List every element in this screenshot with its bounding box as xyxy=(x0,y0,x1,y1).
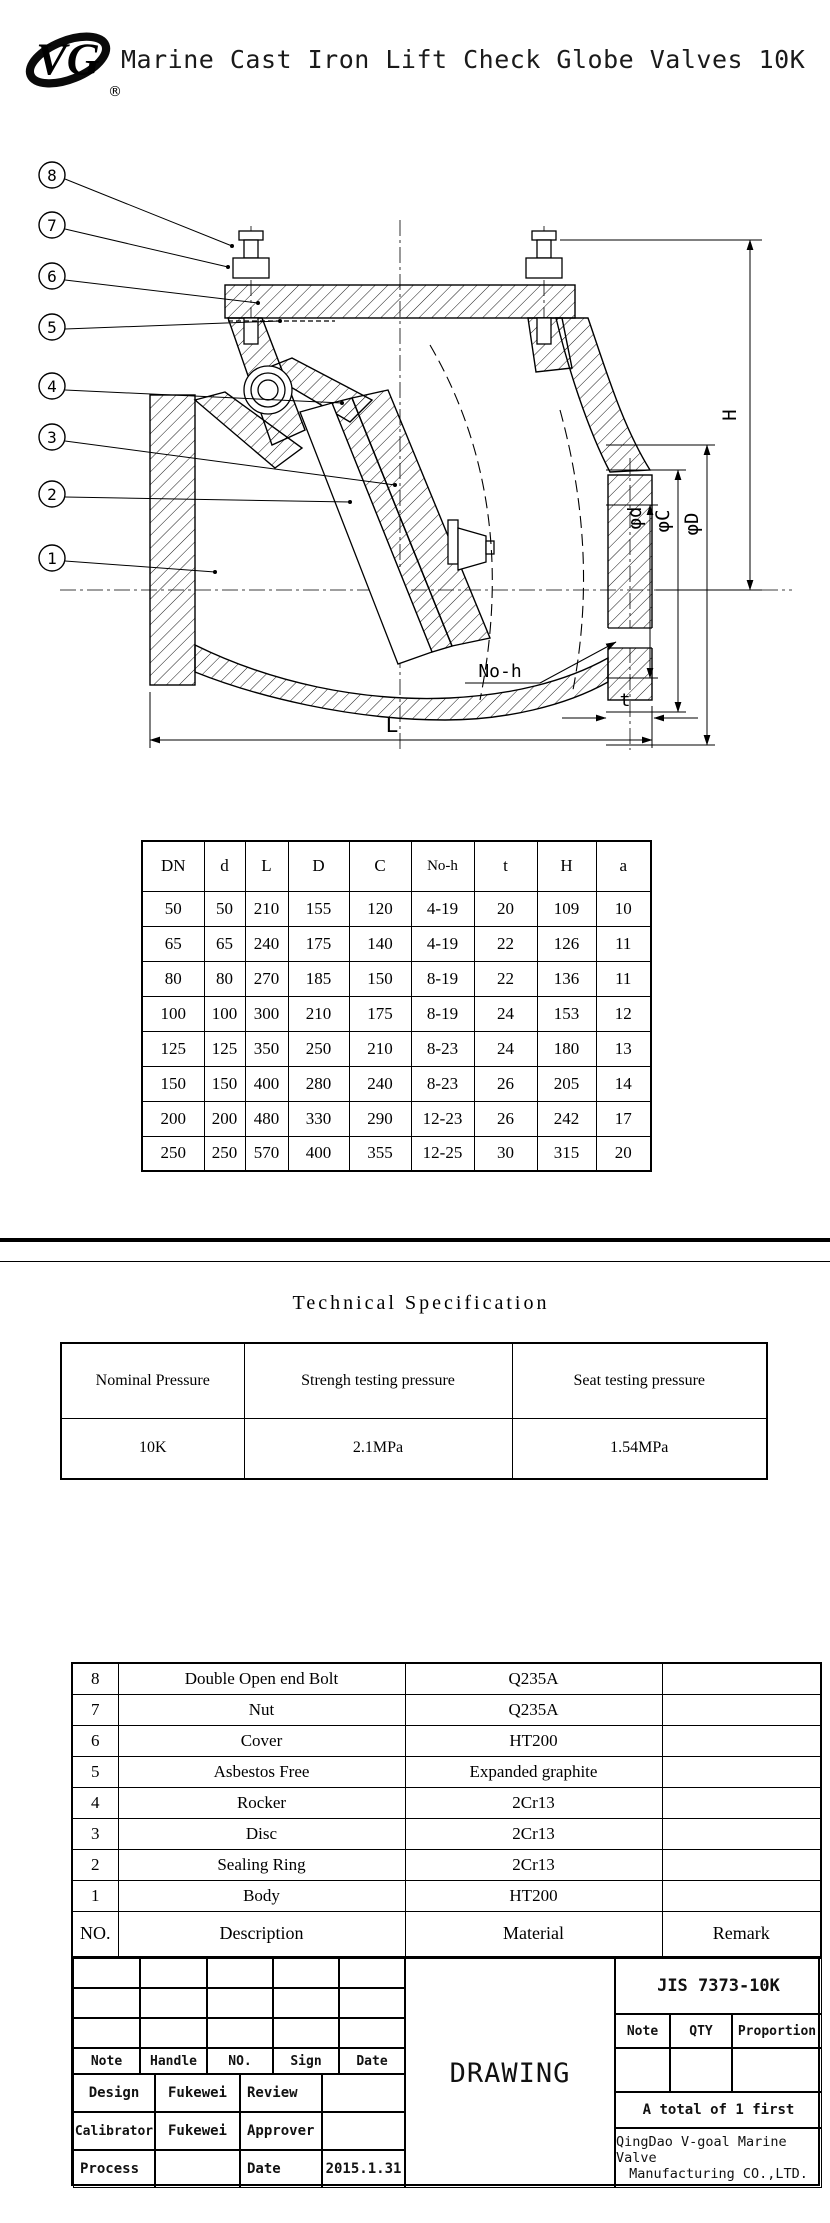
dim-Noh-label: No-h xyxy=(478,661,521,682)
table-row: 1251253502502108-232418013 xyxy=(142,1031,651,1066)
company-cell: QingDao V-goal Marine Valve Manufacturin… xyxy=(615,2128,822,2188)
part-material: HT200 xyxy=(405,1880,662,1911)
company-logo: VG xyxy=(22,16,114,104)
cell: 17 xyxy=(596,1101,651,1136)
calibrator-name: Fukewei xyxy=(155,2112,240,2150)
part-no: 5 xyxy=(72,1756,118,1787)
col-header: D xyxy=(288,841,349,891)
cell: 22 xyxy=(474,926,537,961)
part-material: 2Cr13 xyxy=(405,1849,662,1880)
cell: 570 xyxy=(245,1136,288,1171)
cell: 400 xyxy=(245,1066,288,1101)
cell: 210 xyxy=(349,1031,411,1066)
dimension-table: DN d L D C No-h t H a 50502101551204-192… xyxy=(141,840,652,1172)
cell: 180 xyxy=(537,1031,596,1066)
part-no: 8 xyxy=(72,1663,118,1694)
cell: 125 xyxy=(204,1031,245,1066)
drawing-cell: DRAWING xyxy=(405,1958,615,2188)
cell: 10 xyxy=(596,891,651,926)
callout-2: 2 xyxy=(47,485,57,504)
cell: 8-23 xyxy=(411,1066,474,1101)
qty-note-value xyxy=(615,2048,670,2092)
spec-value: 10K xyxy=(61,1418,244,1479)
qty-header-note: Note xyxy=(615,2014,670,2048)
part-material: Q235A xyxy=(405,1694,662,1725)
sign-header-no: NO. xyxy=(207,2048,273,2074)
col-header: DN xyxy=(142,841,204,891)
footer-material: Material xyxy=(405,1911,662,1957)
cell: 26 xyxy=(474,1066,537,1101)
part-description: Nut xyxy=(118,1694,405,1725)
part-row: 2Sealing Ring2Cr13 xyxy=(72,1849,821,1880)
callout-4: 4 xyxy=(47,377,57,396)
cell: 280 xyxy=(288,1066,349,1101)
approver-label: Approver xyxy=(240,2112,322,2150)
part-no: 3 xyxy=(72,1818,118,1849)
divider-thin xyxy=(0,1261,830,1262)
cell: 125 xyxy=(142,1031,204,1066)
footer-description: Description xyxy=(118,1911,405,1957)
part-description: Double Open end Bolt xyxy=(118,1663,405,1694)
part-remark xyxy=(662,1787,821,1818)
part-row: 7NutQ235A xyxy=(72,1694,821,1725)
cell: 50 xyxy=(204,891,245,926)
right-bolt-nut xyxy=(526,258,562,278)
cell: 200 xyxy=(204,1101,245,1136)
cell: 185 xyxy=(288,961,349,996)
design-label: Design xyxy=(73,2074,155,2112)
table-row: 80802701851508-192213611 xyxy=(142,961,651,996)
dim-phiD-label: φD xyxy=(681,513,703,536)
qty-header-qty: QTY xyxy=(670,2014,732,2048)
cell: 200 xyxy=(142,1101,204,1136)
callout-3: 3 xyxy=(47,428,57,447)
callout-6: 6 xyxy=(47,267,57,286)
part-material: 2Cr13 xyxy=(405,1818,662,1849)
divider-thick xyxy=(0,1238,830,1242)
cell: 24 xyxy=(474,996,537,1031)
cell: 11 xyxy=(596,926,651,961)
part-row: 4Rocker2Cr13 xyxy=(72,1787,821,1818)
col-header: C xyxy=(349,841,411,891)
spec-table: Nominal Pressure Strengh testing pressur… xyxy=(60,1342,768,1480)
part-description: Disc xyxy=(118,1818,405,1849)
part-row: 8Double Open end BoltQ235A xyxy=(72,1663,821,1694)
part-description: Asbestos Free xyxy=(118,1756,405,1787)
cell: 30 xyxy=(474,1136,537,1171)
table-row: 20020048033029012-232624217 xyxy=(142,1101,651,1136)
dim-phiC-label: φC xyxy=(652,510,674,533)
cell: 315 xyxy=(537,1136,596,1171)
cell: 290 xyxy=(349,1101,411,1136)
part-description: Body xyxy=(118,1880,405,1911)
standard-cell: JIS 7373-10K xyxy=(615,1958,822,2014)
company-line2: Manufacturing CO.,LTD. xyxy=(629,2166,808,2182)
cell: 240 xyxy=(245,926,288,961)
cell: 20 xyxy=(596,1136,651,1171)
process-value xyxy=(155,2150,240,2188)
cell: 150 xyxy=(349,961,411,996)
spec-header-row: Nominal Pressure Strengh testing pressur… xyxy=(61,1343,767,1418)
cell: 480 xyxy=(245,1101,288,1136)
part-remark xyxy=(662,1694,821,1725)
cell: 242 xyxy=(537,1101,596,1136)
table-row: 1001003002101758-192415312 xyxy=(142,996,651,1031)
footer-no: NO. xyxy=(72,1911,118,1957)
cell: 150 xyxy=(142,1066,204,1101)
callout-1: 1 xyxy=(47,549,57,568)
registered-mark: ® xyxy=(108,84,122,100)
part-no: 6 xyxy=(72,1725,118,1756)
svg-text:VG: VG xyxy=(36,34,100,85)
cell: 22 xyxy=(474,961,537,996)
title-block: DRAWING Note Handle NO. Sign Date Design… xyxy=(71,1956,820,2186)
col-header: H xyxy=(537,841,596,891)
part-material: 2Cr13 xyxy=(405,1787,662,1818)
part-row: 3Disc2Cr13 xyxy=(72,1818,821,1849)
col-header: d xyxy=(204,841,245,891)
cell: 13 xyxy=(596,1031,651,1066)
cell: 136 xyxy=(537,961,596,996)
part-remark xyxy=(662,1725,821,1756)
sign-header-sign: Sign xyxy=(273,2048,339,2074)
cell: 100 xyxy=(142,996,204,1031)
part-no: 2 xyxy=(72,1849,118,1880)
dim-H-label: H xyxy=(719,409,741,420)
cell: 11 xyxy=(596,961,651,996)
cell: 80 xyxy=(142,961,204,996)
catalog-page: VG ® Marine Cast Iron Lift Check Globe V… xyxy=(0,0,830,2223)
process-label: Process xyxy=(73,2150,155,2188)
parts-footer-row: NO. Description Material Remark xyxy=(72,1911,821,1957)
footer-remark: Remark xyxy=(662,1911,821,1957)
table-row: 65652401751404-192212611 xyxy=(142,926,651,961)
cell: 12-23 xyxy=(411,1101,474,1136)
approver-value xyxy=(322,2112,405,2150)
cell: 153 xyxy=(537,996,596,1031)
cell: 355 xyxy=(349,1136,411,1171)
part-material: Expanded graphite xyxy=(405,1756,662,1787)
spec-header: Nominal Pressure xyxy=(61,1343,244,1418)
part-no: 1 xyxy=(72,1880,118,1911)
part-row: 6CoverHT200 xyxy=(72,1725,821,1756)
total-note-cell: A total of 1 first xyxy=(615,2092,822,2128)
cell: 205 xyxy=(537,1066,596,1101)
cell: 50 xyxy=(142,891,204,926)
part-remark xyxy=(662,1818,821,1849)
cell: 270 xyxy=(245,961,288,996)
callout-7: 7 xyxy=(47,216,57,235)
qty-proportion-value xyxy=(732,2048,822,2092)
cell: 175 xyxy=(349,996,411,1031)
part-remark xyxy=(662,1849,821,1880)
cell: 250 xyxy=(288,1031,349,1066)
callout-8: 8 xyxy=(47,166,57,185)
col-header: No-h xyxy=(411,841,474,891)
cell: 4-19 xyxy=(411,926,474,961)
valve-section-drawing: 8 7 6 5 4 3 2 1 xyxy=(0,100,830,760)
design-name: Fukewei xyxy=(155,2074,240,2112)
spec-value: 1.54MPa xyxy=(512,1418,767,1479)
dim-t-label: t xyxy=(620,690,631,711)
company-line1: QingDao V-goal Marine Valve xyxy=(616,2134,821,2166)
sign-header-note: Note xyxy=(73,2048,140,2074)
cell: 4-19 xyxy=(411,891,474,926)
left-bolt-cap xyxy=(239,231,263,240)
part-remark xyxy=(662,1663,821,1694)
part-row: 1BodyHT200 xyxy=(72,1880,821,1911)
cell: 330 xyxy=(288,1101,349,1136)
part-description: Sealing Ring xyxy=(118,1849,405,1880)
table-row: 50502101551204-192010910 xyxy=(142,891,651,926)
calibrator-label: Calibrator xyxy=(73,2112,155,2150)
col-header: L xyxy=(245,841,288,891)
page-title: Marine Cast Iron Lift Check Globe Valves… xyxy=(121,45,805,74)
part-no: 7 xyxy=(72,1694,118,1725)
date-value: 2015.1.31 xyxy=(322,2150,405,2188)
date-label: Date xyxy=(240,2150,322,2188)
part-description: Cover xyxy=(118,1725,405,1756)
parts-list-table: 8Double Open end BoltQ235A 7NutQ235A 6Co… xyxy=(71,1662,822,1958)
cell: 8-23 xyxy=(411,1031,474,1066)
cell: 210 xyxy=(245,891,288,926)
cell: 20 xyxy=(474,891,537,926)
part-material: Q235A xyxy=(405,1663,662,1694)
col-header: a xyxy=(596,841,651,891)
cell: 250 xyxy=(142,1136,204,1171)
spec-title: Technical Specification xyxy=(293,1292,550,1315)
cell: 120 xyxy=(349,891,411,926)
qty-header-proportion: Proportion xyxy=(732,2014,822,2048)
disc-nut xyxy=(458,528,486,570)
part-row: 5Asbestos FreeExpanded graphite xyxy=(72,1756,821,1787)
cell: 8-19 xyxy=(411,961,474,996)
cell: 300 xyxy=(245,996,288,1031)
part-material: HT200 xyxy=(405,1725,662,1756)
cell: 100 xyxy=(204,996,245,1031)
sign-header-handle: Handle xyxy=(140,2048,207,2074)
cell: 250 xyxy=(204,1136,245,1171)
cell: 26 xyxy=(474,1101,537,1136)
cell: 126 xyxy=(537,926,596,961)
cell: 175 xyxy=(288,926,349,961)
left-bolt-stud xyxy=(244,240,258,258)
disc-washer xyxy=(448,520,458,564)
cell: 400 xyxy=(288,1136,349,1171)
right-bolt-cap xyxy=(532,231,556,240)
cell: 240 xyxy=(349,1066,411,1101)
upper-right-wall xyxy=(556,318,650,472)
qty-qty-value xyxy=(670,2048,732,2092)
part-description: Rocker xyxy=(118,1787,405,1818)
table-row: 25025057040035512-253031520 xyxy=(142,1136,651,1171)
spec-value-row: 10K 2.1MPa 1.54MPa xyxy=(61,1418,767,1479)
drawing-label: DRAWING xyxy=(450,2058,571,2089)
cell: 150 xyxy=(204,1066,245,1101)
cell: 8-19 xyxy=(411,996,474,1031)
inlet-flange xyxy=(150,395,195,685)
callout-5: 5 xyxy=(47,318,57,337)
cell: 109 xyxy=(537,891,596,926)
col-header: t xyxy=(474,841,537,891)
cell: 12-25 xyxy=(411,1136,474,1171)
spec-value: 2.1MPa xyxy=(244,1418,512,1479)
left-bolt-nut xyxy=(233,258,269,278)
table-row: 1501504002802408-232620514 xyxy=(142,1066,651,1101)
cover-plate xyxy=(225,285,575,318)
spec-header: Strengh testing pressure xyxy=(244,1343,512,1418)
part-remark xyxy=(662,1880,821,1911)
cell: 350 xyxy=(245,1031,288,1066)
review-value xyxy=(322,2074,405,2112)
sign-header-date: Date xyxy=(339,2048,405,2074)
right-bolt-stud xyxy=(537,240,551,258)
dim-phid-label: φd xyxy=(624,507,646,530)
cell: 12 xyxy=(596,996,651,1031)
dim-L-label: L xyxy=(386,713,399,737)
part-remark xyxy=(662,1756,821,1787)
cell: 24 xyxy=(474,1031,537,1066)
cell: 140 xyxy=(349,926,411,961)
cell: 80 xyxy=(204,961,245,996)
review-label: Review xyxy=(240,2074,322,2112)
part-no: 4 xyxy=(72,1787,118,1818)
cell: 210 xyxy=(288,996,349,1031)
dimension-table-header: DN d L D C No-h t H a xyxy=(142,841,651,891)
cell: 65 xyxy=(142,926,204,961)
logo-swoosh-icon: VG xyxy=(22,16,114,104)
cell: 155 xyxy=(288,891,349,926)
cell: 14 xyxy=(596,1066,651,1101)
cell: 65 xyxy=(204,926,245,961)
spec-header: Seat testing pressure xyxy=(512,1343,767,1418)
